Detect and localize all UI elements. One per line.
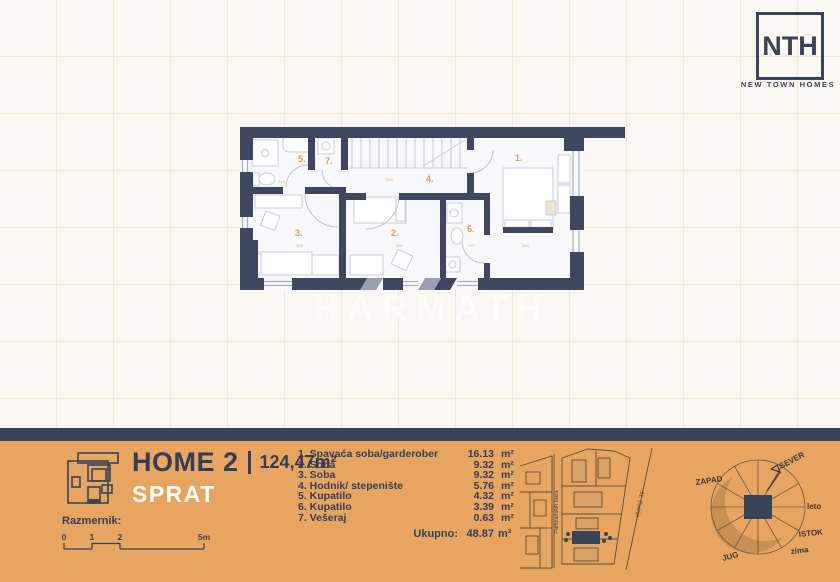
dim-text: 210 xyxy=(278,179,285,184)
dim-text: 177 xyxy=(468,243,475,248)
wardrobe xyxy=(558,155,570,183)
brochure-page: NTH NEW TOWN HOMES xyxy=(0,0,840,582)
scale-tick-5m: 5m xyxy=(198,533,211,542)
sink xyxy=(447,203,462,223)
room-label-4: 4. xyxy=(426,174,434,184)
dim-text: 344 xyxy=(386,177,393,182)
wardrobe xyxy=(558,185,570,213)
scale-tick-0: 0 xyxy=(62,533,67,542)
room-area: 0.63 xyxy=(458,513,494,524)
logo-monogram: NTH xyxy=(762,31,818,62)
room-name: 1. Spavaća soba/garderober xyxy=(298,449,458,460)
watermark: HARMATH NEKRETNINE xyxy=(296,289,568,341)
room-label-5: 5. xyxy=(298,154,306,164)
room-list-row: 7. Vešeraj 0.63 m² xyxy=(298,513,527,524)
room-name: 7. Vešeraj xyxy=(298,513,458,524)
site-buildings xyxy=(572,458,610,561)
shower xyxy=(252,140,278,166)
compass-west: ZAPAD xyxy=(695,474,723,487)
toilet-tank xyxy=(253,173,259,186)
pillow xyxy=(531,220,551,228)
headboard xyxy=(503,227,553,233)
pillow xyxy=(396,199,405,221)
watermark-subtitle: NEKRETNINE xyxy=(296,332,568,341)
scale-tick-2: 2 xyxy=(118,533,123,542)
toilet xyxy=(259,173,275,185)
dim-text: 314 xyxy=(522,243,529,248)
desk xyxy=(255,195,302,208)
house-icon xyxy=(62,447,124,509)
total-label: Ukupno: xyxy=(298,528,458,540)
floor-plan: 1. 2. 3. 4. 5. 6. 7. 210 344 329 330 177… xyxy=(236,121,636,296)
desk xyxy=(312,255,339,275)
desk xyxy=(350,255,383,275)
room-label-7: 7. xyxy=(325,156,333,166)
highlighted-building xyxy=(572,531,600,544)
footer-divider-bar xyxy=(0,428,840,441)
scale-bar: 0 1 2 5m xyxy=(58,533,228,559)
room-name: 6. Kupatilo xyxy=(298,502,458,513)
building-footprint xyxy=(744,495,772,519)
compass-summer: leto xyxy=(807,502,821,511)
room-area: 16.13 xyxy=(458,449,494,460)
title-divider xyxy=(248,451,251,474)
scale-label: Razmernik: xyxy=(62,515,121,527)
site-map: Partizanskih baza 51. Divizije xyxy=(518,442,668,576)
nightstand xyxy=(546,201,556,215)
dim-text: 330 xyxy=(396,243,403,248)
compass-east: ISTOK xyxy=(798,527,823,539)
room-label-1: 1. xyxy=(515,153,523,163)
room-label-2: 2. xyxy=(391,228,399,238)
washing-machine xyxy=(318,138,334,154)
compass-north: SEVER xyxy=(778,450,806,471)
street-name-vertical: Partizanskih baza xyxy=(554,489,560,533)
dim-text: 329 xyxy=(296,243,303,248)
logo-brand-text: NEW TOWN HOMES xyxy=(722,80,840,89)
washing-machine xyxy=(445,257,460,272)
street-name-diagonal: 51. Divizije xyxy=(634,491,645,518)
compass-rose: SEVER ZAPAD leto ISTOK zima JUG xyxy=(693,441,840,582)
total-value: 48.87 xyxy=(458,528,494,540)
compass-winter: zima xyxy=(790,545,809,556)
total-row: Ukupno: 48.87 m² xyxy=(298,528,527,540)
room-list-row: 6. Kupatilo 3.39 m² xyxy=(298,502,527,513)
home-title: HOME 2 xyxy=(132,447,239,478)
room-label-6: 6. xyxy=(467,224,475,234)
toilet xyxy=(451,228,463,244)
room-area: 3.39 xyxy=(458,502,494,513)
scale-tick-1: 1 xyxy=(90,533,95,542)
nth-logo: NTH xyxy=(756,12,824,80)
compass-south: JUG xyxy=(721,550,739,563)
room-label-3: 3. xyxy=(295,228,303,238)
room-list: 1. Spavaća soba/garderober 16.13 m² 2. S… xyxy=(298,449,527,540)
room-list-row: 1. Spavaća soba/garderober 16.13 m² xyxy=(298,449,527,460)
pillow xyxy=(505,220,529,228)
